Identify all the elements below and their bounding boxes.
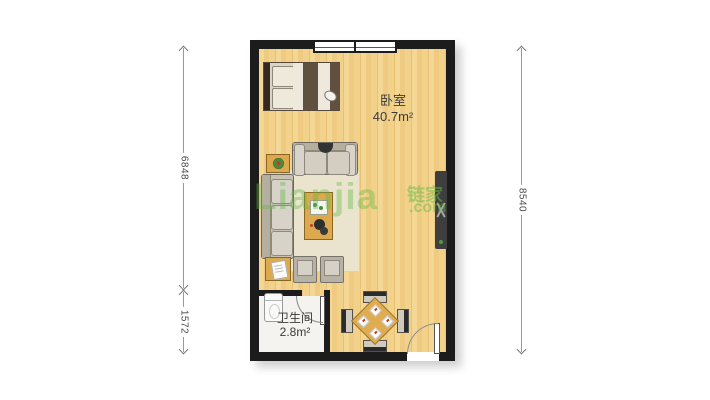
dimension-right: 8540 xyxy=(521,48,522,352)
sofa-cushion xyxy=(271,179,293,204)
sofa-cushion xyxy=(304,151,327,175)
vase-icon xyxy=(320,227,328,235)
floor-plan-canvas: 卧室 40.7m² 卫生间 2.8m² Lianjia 链家 .com 6848… xyxy=(0,0,710,400)
arrow-up-icon xyxy=(517,46,527,56)
window-icon xyxy=(313,40,397,53)
chair-back xyxy=(364,347,386,351)
tray-icon xyxy=(310,200,328,215)
blanket-stripe xyxy=(293,63,303,110)
tv-icon xyxy=(435,171,447,249)
coffee-table-icon xyxy=(304,192,333,240)
loveseat-icon xyxy=(292,142,358,175)
bed-headboard xyxy=(264,63,270,110)
room-area: 2.8m² xyxy=(262,325,328,339)
side-table-plant-icon xyxy=(266,154,290,173)
window-mullion xyxy=(395,42,397,51)
decor-dot xyxy=(310,224,313,227)
dimension-value: 8540 xyxy=(517,185,528,215)
room-area: 40.7m² xyxy=(350,109,436,125)
side-table-book-icon xyxy=(265,257,291,281)
sofa-back xyxy=(262,175,271,258)
plant-dot-icon xyxy=(439,240,443,244)
room-name: 卫生间 xyxy=(262,311,328,325)
chair-back xyxy=(404,310,408,332)
sofa-cushion xyxy=(327,151,350,175)
dimension-value: 6848 xyxy=(179,153,190,183)
window-mullion xyxy=(354,42,356,51)
dimension-value: 1572 xyxy=(179,307,190,337)
arrow-up-icon xyxy=(179,46,189,56)
arrow-up-icon xyxy=(179,290,189,300)
ottoman-icon xyxy=(293,256,317,283)
dimension-left-lower: 1572 xyxy=(183,292,184,352)
sofa-icon xyxy=(261,174,294,259)
chair-back xyxy=(364,292,386,296)
pillow-icon xyxy=(272,66,294,87)
plant-icon xyxy=(273,158,284,169)
bathroom-label: 卫生间 2.8m² xyxy=(262,311,328,340)
blanket-stripe xyxy=(318,63,330,110)
arrow-down-icon xyxy=(179,345,189,355)
blanket-stripe xyxy=(303,63,318,110)
arrow-down-icon xyxy=(517,345,527,355)
pillow-icon xyxy=(272,88,294,109)
book-icon xyxy=(271,260,289,280)
dimension-left-upper: 6848 xyxy=(183,48,184,288)
blanket-stripe xyxy=(330,63,340,110)
sofa-cushion xyxy=(271,231,293,256)
room-name: 卧室 xyxy=(350,93,436,109)
sofa-cushion xyxy=(271,205,293,230)
ottoman-icon xyxy=(320,256,344,283)
window-mullion xyxy=(313,42,315,51)
bed-icon xyxy=(263,62,340,111)
chair-back xyxy=(342,310,346,332)
bedroom-label: 卧室 40.7m² xyxy=(350,93,436,124)
